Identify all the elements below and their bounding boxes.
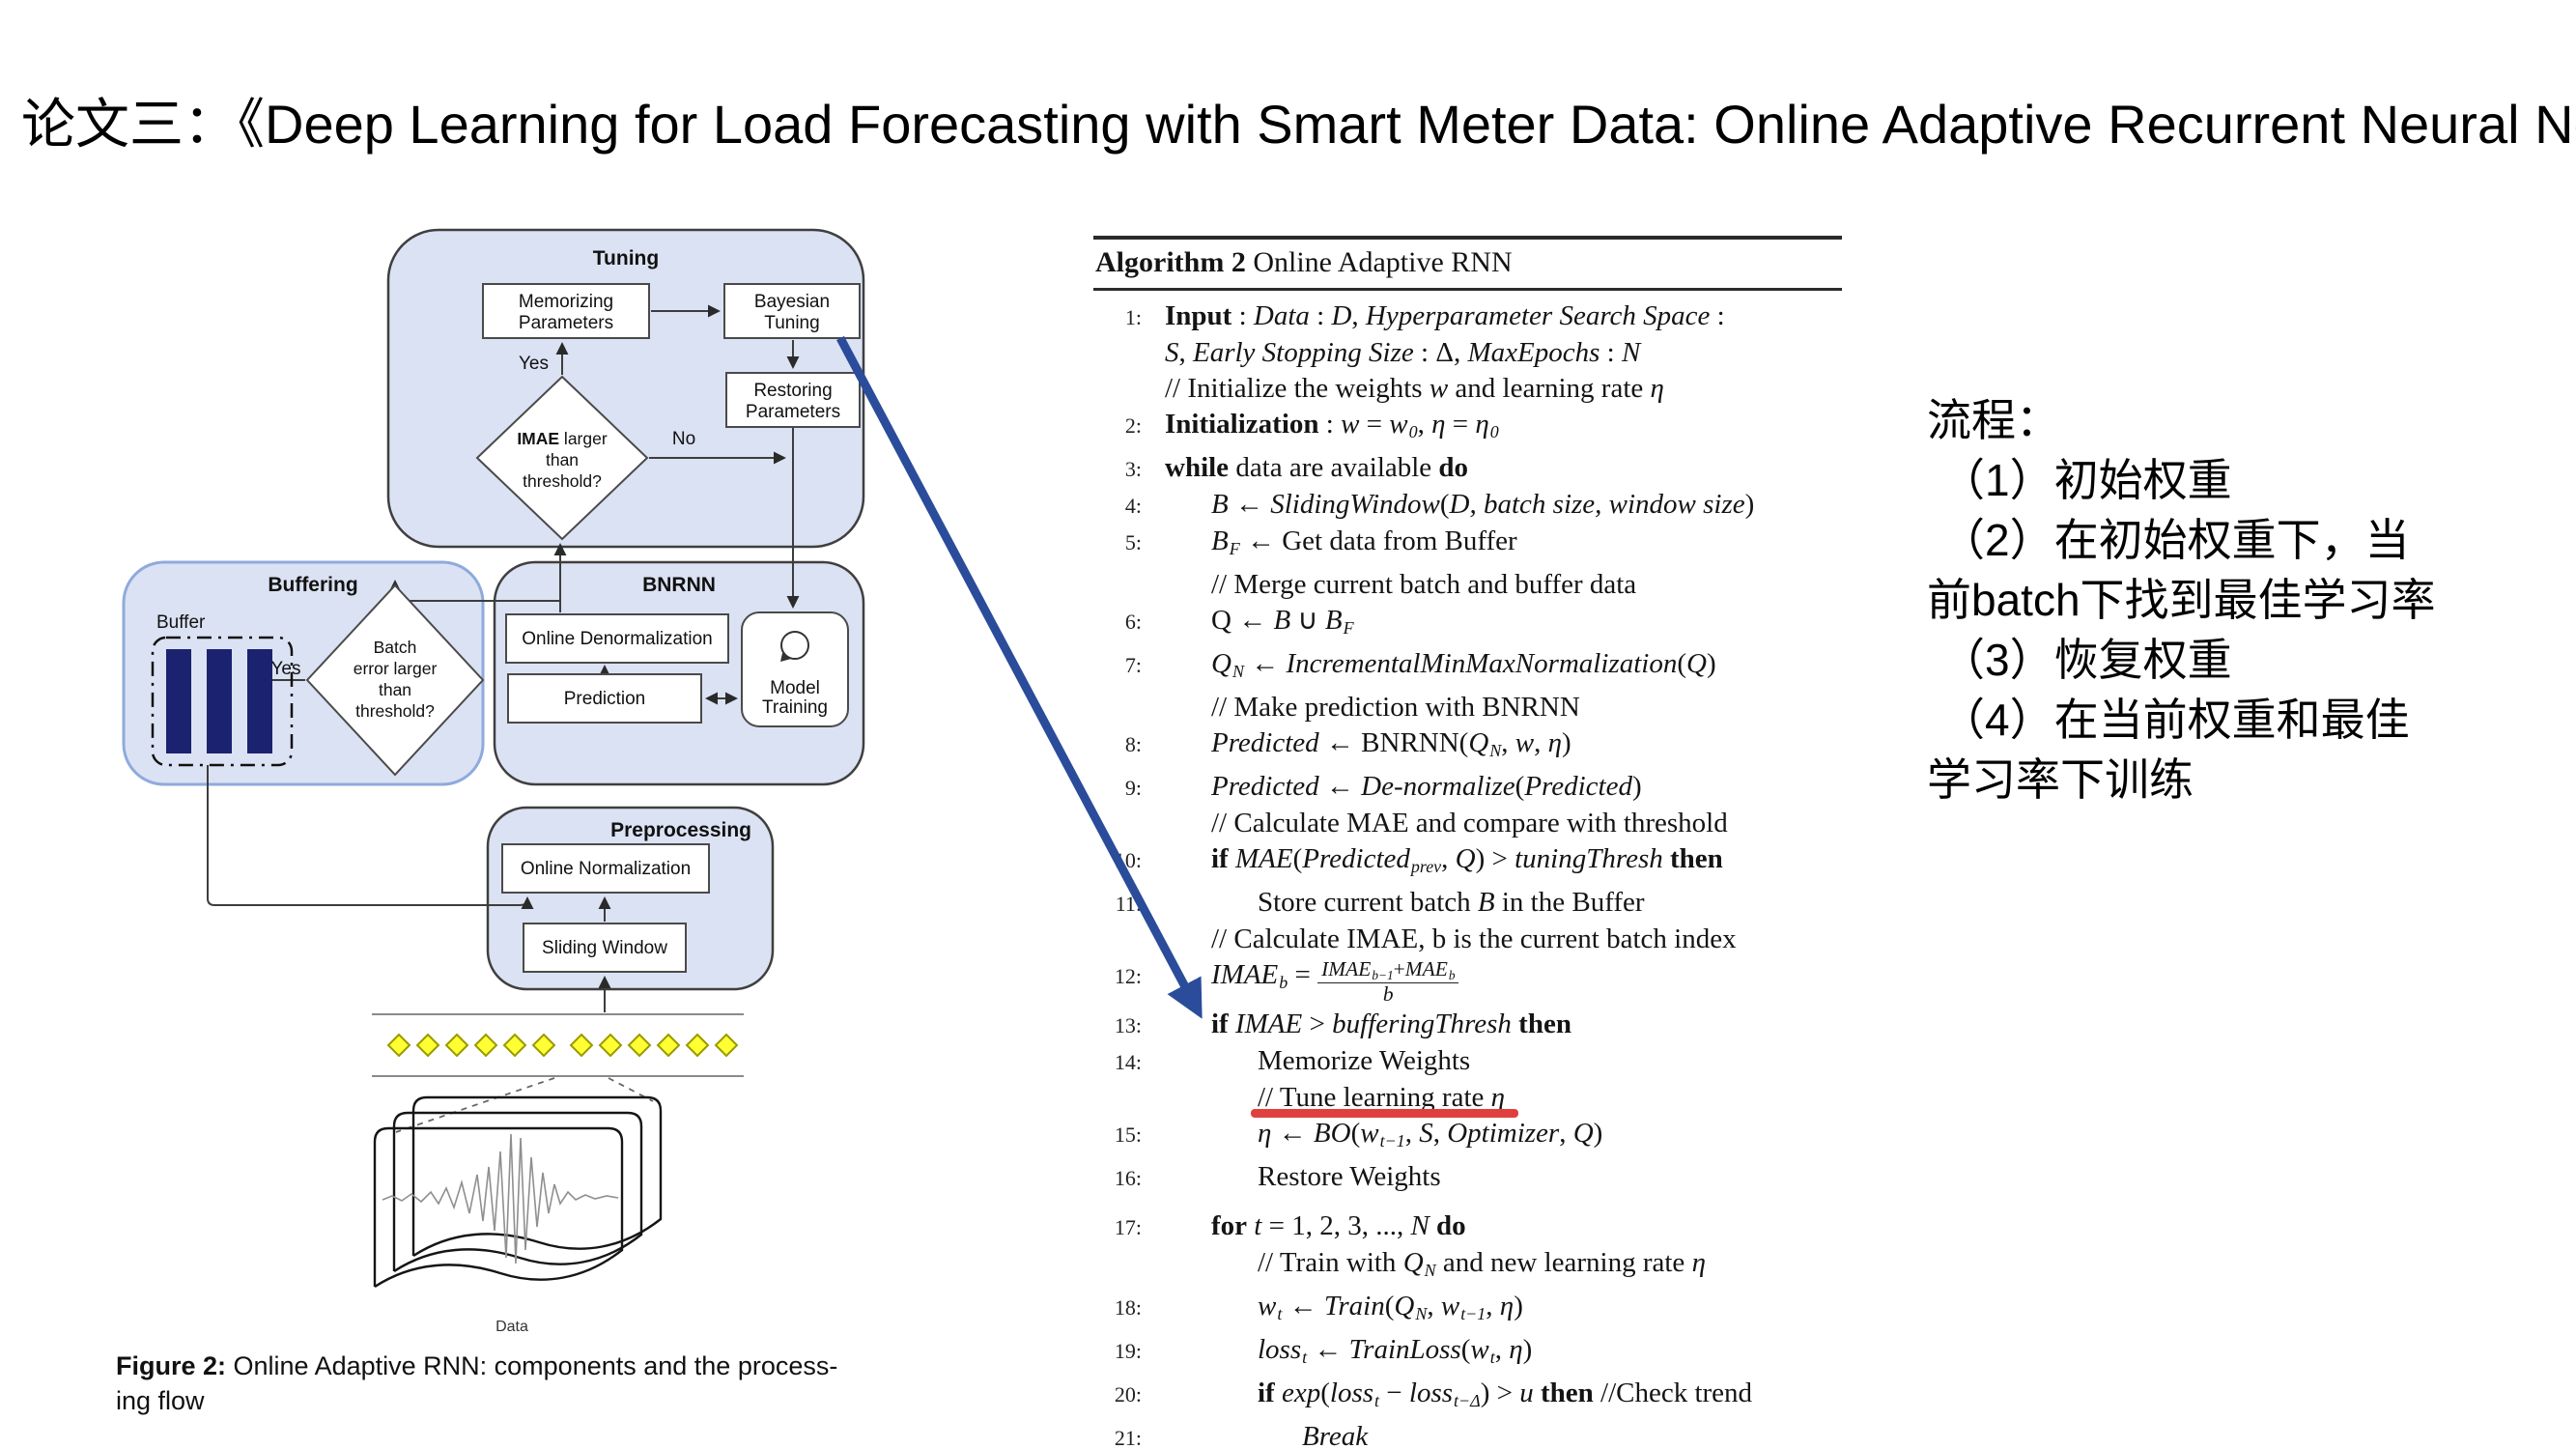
line-content: losst ← TrainLoss(wt, η) — [1258, 1332, 1532, 1376]
note-line: 前batch下找到最佳学习率 — [1927, 570, 2564, 630]
algorithm-line: 9:Predicted ← De-normalize(Predicted) — [1093, 769, 1842, 806]
line-content: while data are available do — [1165, 450, 1468, 486]
line-content: Input : Data : D, Hyperparameter Search … — [1165, 298, 1725, 334]
svg-text:Online Normalization: Online Normalization — [521, 859, 691, 879]
yes-label-tuning: Yes — [519, 354, 549, 374]
no-label-tuning: No — [672, 429, 695, 449]
algorithm-line: 4:B ← SlidingWindow(D, batch size, windo… — [1093, 487, 1842, 524]
algorithm-line: 12:IMAEb = IMAEb−1+MAEbb — [1093, 957, 1842, 1007]
algorithm-line: 15:η ← BO(wt−1, S, Optimizer, Q) — [1093, 1116, 1842, 1159]
zoom-dash-left — [396, 1078, 554, 1132]
algorithm-line: 20:if exp(losst − losst−Δ) > u then //Ch… — [1093, 1376, 1842, 1419]
svg-text:Batch: Batch — [374, 638, 417, 657]
line-number: 3: — [1093, 451, 1151, 487]
svg-text:Memorizing: Memorizing — [519, 292, 613, 312]
line-content: Predicted ← De-normalize(Predicted) — [1211, 769, 1642, 805]
online-normalization-box: Online Normalization — [502, 844, 709, 893]
line-number: 8: — [1093, 726, 1151, 762]
svg-text:Model: Model — [770, 678, 820, 698]
line-content: for t = 1, 2, 3, ..., N do — [1211, 1208, 1466, 1244]
algorithm-line: // Make prediction with BNRNN — [1093, 690, 1842, 725]
line-number: 1: — [1093, 299, 1151, 335]
line-content: // Make prediction with BNRNN — [1211, 690, 1580, 725]
line-number: 2: — [1093, 408, 1151, 443]
flowchart-figure: Tuning Buffering BNRNN Preprocessing Mem… — [106, 222, 879, 1439]
algorithm-line: 14:Memorize Weights — [1093, 1043, 1842, 1080]
algorithm-line: // Merge current batch and buffer data — [1093, 567, 1842, 603]
line-content: // Calculate MAE and compare with thresh… — [1211, 806, 1728, 841]
algorithm-line: // Train with QN and new learning rate η — [1093, 1245, 1842, 1289]
line-content: Q ← B ∪ BF — [1211, 603, 1354, 646]
bnrnn-title: BNRNN — [642, 574, 716, 596]
line-content: S, Early Stopping Size : Δ, MaxEpochs : … — [1165, 335, 1640, 371]
algorithm-body: 1:Input : Data : D, Hyperparameter Searc… — [1093, 291, 1842, 1449]
memorizing-parameters-box: Memorizing Parameters — [483, 284, 649, 338]
caption-line-2: ing flow — [116, 1383, 889, 1418]
algorithm-block: Algorithm 2 Online Adaptive RNN 1:Input … — [1093, 236, 1842, 1449]
algorithm-line: 6:Q ← B ∪ BF — [1093, 603, 1842, 646]
line-number: 21: — [1093, 1420, 1151, 1449]
buffer-label: Buffer — [156, 612, 206, 633]
line-number: 4: — [1093, 488, 1151, 524]
line-content: Restore Weights — [1258, 1159, 1441, 1195]
line-number: 7: — [1093, 647, 1151, 683]
svg-text:Training: Training — [762, 697, 828, 718]
algorithm-line: // Tune learning rate η — [1093, 1080, 1842, 1116]
algorithm-line: 19:losst ← TrainLoss(wt, η) — [1093, 1332, 1842, 1376]
line-content: Initialization : w = w0, η = η0 — [1165, 407, 1499, 450]
line-content: // Initialize the weights w and learning… — [1165, 371, 1664, 407]
algorithm-line: 7:QN ← IncrementalMinMaxNormalization(Q) — [1093, 646, 1842, 690]
caption-figure-number: Figure 2: — [116, 1351, 226, 1380]
buffer-bars — [166, 649, 272, 753]
figure-caption: Figure 2: Online Adaptive RNN: component… — [116, 1349, 889, 1418]
line-number: 11: — [1093, 886, 1151, 922]
online-denormalization-box: Online Denormalization — [506, 614, 728, 663]
yes-label-buffering: Yes — [271, 659, 301, 679]
data-stream — [372, 1014, 744, 1076]
note-line: （1）初始权重 — [1927, 450, 2564, 510]
algorithm-line: // Initialize the weights w and learning… — [1093, 371, 1842, 407]
svg-text:than: than — [546, 450, 579, 469]
line-number: 5: — [1093, 525, 1151, 560]
preprocessing-title: Preprocessing — [610, 819, 751, 841]
svg-text:than: than — [379, 680, 411, 699]
line-content: IMAEb = IMAEb−1+MAEbb — [1211, 957, 1458, 1007]
svg-text:Parameters: Parameters — [746, 402, 840, 422]
signal-waveform — [382, 1134, 618, 1264]
algorithm-line: 3:while data are available do — [1093, 450, 1842, 487]
svg-text:Prediction: Prediction — [564, 689, 646, 709]
line-content: Store current batch B in the Buffer — [1258, 885, 1645, 921]
algorithm-line: S, Early Stopping Size : Δ, MaxEpochs : … — [1093, 335, 1842, 371]
model-training-box: Model Training — [742, 612, 848, 726]
line-content: if MAE(Predictedprev, Q) > tuningThresh … — [1211, 841, 1723, 885]
buffering-title: Buffering — [268, 574, 357, 596]
algorithm-line: 1:Input : Data : D, Hyperparameter Searc… — [1093, 298, 1842, 335]
note-line: （4）在当前权重和最佳 — [1927, 690, 2564, 750]
line-content: Predicted ← BNRNN(QN, w, η) — [1211, 725, 1571, 769]
caption-line-1: Figure 2: Online Adaptive RNN: component… — [116, 1349, 889, 1383]
line-number: 20: — [1093, 1377, 1151, 1412]
sliding-window-box: Sliding Window — [524, 923, 686, 972]
line-number: 9: — [1093, 770, 1151, 806]
process-notes: 流程：（1）初始权重（2）在初始权重下，当前batch下找到最佳学习率（3）恢复… — [1927, 390, 2564, 810]
line-number: 6: — [1093, 604, 1151, 639]
algorithm-line: // Calculate MAE and compare with thresh… — [1093, 806, 1842, 841]
bayesian-tuning-box: Bayesian Tuning — [724, 284, 860, 338]
note-line: （2）在初始权重下，当 — [1927, 510, 2564, 570]
algorithm-line: 13:if IMAE > bufferingThresh then — [1093, 1007, 1842, 1043]
svg-text:Restoring: Restoring — [753, 381, 832, 401]
line-number: 12: — [1093, 958, 1151, 994]
line-number: 13: — [1093, 1008, 1151, 1043]
line-content: if exp(losst − losst−Δ) > u then //Check… — [1258, 1376, 1752, 1419]
algorithm-line: // Calculate IMAE, b is the current batc… — [1093, 922, 1842, 957]
note-line: （3）恢复权重 — [1927, 630, 2564, 690]
algorithm-line: 5:BF ← Get data from Buffer — [1093, 524, 1842, 567]
data-pages: Data — [375, 1097, 661, 1335]
tune-learning-rate-comment: // Tune learning rate η — [1258, 1080, 1505, 1116]
algorithm-line: 8:Predicted ← BNRNN(QN, w, η) — [1093, 725, 1842, 769]
tuning-title: Tuning — [593, 247, 659, 270]
line-number: 16: — [1093, 1160, 1151, 1196]
arrow-buffer-to-online-norm — [208, 765, 527, 905]
line-number: 15: — [1093, 1117, 1151, 1152]
note-line: 流程： — [1927, 390, 2564, 450]
data-label: Data — [495, 1319, 528, 1335]
slide: 论文三：《Deep Learning for Load Forecasting … — [0, 0, 2576, 1449]
line-content: QN ← IncrementalMinMaxNormalization(Q) — [1211, 646, 1716, 690]
stream-diamond-icons — [388, 1035, 737, 1056]
algorithm-line: 10:if MAE(Predictedprev, Q) > tuningThre… — [1093, 841, 1842, 885]
line-content: wt ← Train(QN, wt−1, η) — [1258, 1289, 1523, 1332]
svg-text:threshold?: threshold? — [523, 471, 602, 491]
line-content: if IMAE > bufferingThresh then — [1211, 1007, 1571, 1042]
algorithm-number: Algorithm 2 — [1095, 246, 1246, 278]
line-number: 14: — [1093, 1044, 1151, 1080]
algorithm-line: 17:for t = 1, 2, 3, ..., N do — [1093, 1208, 1842, 1245]
svg-text:Sliding Window: Sliding Window — [542, 938, 667, 958]
line-content: Break — [1302, 1419, 1368, 1449]
line-number: 10: — [1093, 842, 1151, 878]
svg-text:Bayesian: Bayesian — [754, 292, 830, 312]
line-content: BF ← Get data from Buffer — [1211, 524, 1517, 567]
restoring-parameters-box: Restoring Parameters — [726, 373, 860, 427]
algorithm-line: 21:Break — [1093, 1419, 1842, 1449]
line-content: Memorize Weights — [1258, 1043, 1470, 1079]
line-content: // Train with QN and new learning rate η — [1258, 1245, 1706, 1289]
line-content: B ← SlidingWindow(D, batch size, window … — [1211, 487, 1754, 523]
line-content: η ← BO(wt−1, S, Optimizer, Q) — [1258, 1116, 1602, 1159]
line-number: 18: — [1093, 1290, 1151, 1325]
svg-text:error larger: error larger — [354, 659, 438, 678]
line-number: 17: — [1093, 1209, 1151, 1245]
line-number: 19: — [1093, 1333, 1151, 1369]
line-content: // Merge current batch and buffer data — [1211, 567, 1636, 603]
algorithm-line: 18:wt ← Train(QN, wt−1, η) — [1093, 1289, 1842, 1332]
page-title: 论文三：《Deep Learning for Load Forecasting … — [21, 81, 2576, 159]
algorithm-header: Algorithm 2 Online Adaptive RNN — [1093, 236, 1842, 291]
algorithm-line: 2:Initialization : w = w0, η = η0 — [1093, 407, 1842, 450]
svg-text:Online Denormalization: Online Denormalization — [522, 629, 713, 649]
svg-text:threshold?: threshold? — [355, 701, 435, 721]
svg-text:Parameters: Parameters — [519, 313, 613, 333]
algorithm-line: 11:Store current batch B in the Buffer — [1093, 885, 1842, 922]
prediction-box: Prediction — [508, 674, 701, 723]
note-line: 学习率下训练 — [1927, 750, 2564, 810]
algorithm-line: 16:Restore Weights — [1093, 1159, 1842, 1196]
svg-text:Tuning: Tuning — [764, 313, 819, 333]
svg-text:IMAE larger: IMAE larger — [517, 429, 608, 448]
algorithm-title: Online Adaptive RNN — [1246, 246, 1513, 278]
line-content: // Calculate IMAE, b is the current batc… — [1211, 922, 1737, 957]
